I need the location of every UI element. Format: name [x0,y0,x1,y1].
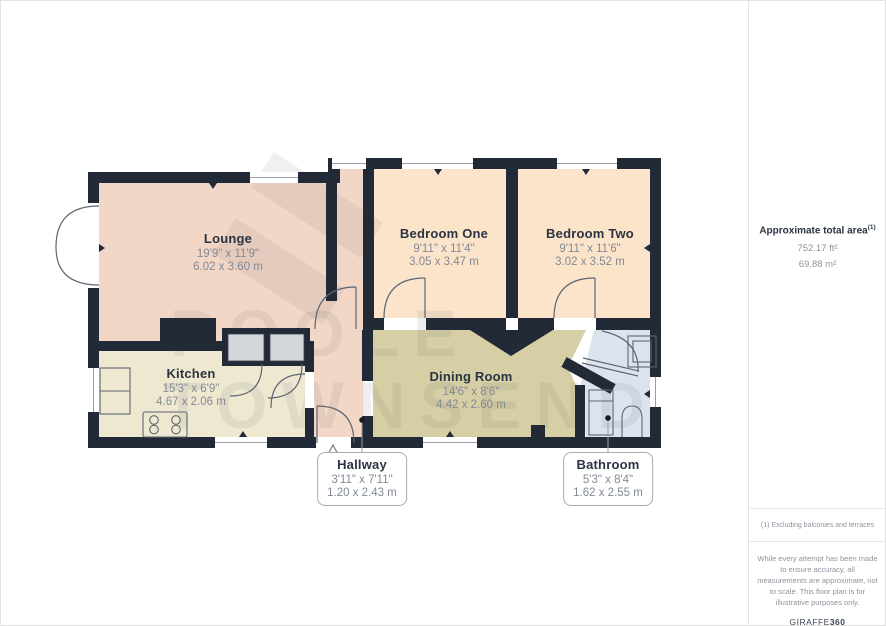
disclaimer-section: While every attempt has been made to ens… [749,541,886,626]
disclaimer-text: While every attempt has been made to ens… [756,554,879,608]
room-name: Lounge [193,231,263,246]
room-dim-imperial: 9'11" x 11'6" [546,243,634,255]
room-dim-metric: 3.05 x 3.47 m [400,256,488,268]
total-area-block: Approximate total area(1) 752.17 ft² 69.… [749,224,886,270]
brand-name: GIRAFFE [789,617,829,626]
room-label-bathroom: Bathroom 5'3" x 8'4" 1.62 x 2.55 m [563,452,653,506]
room-dim-metric: 6.02 x 3.60 m [193,261,263,273]
room-dim-metric: 4.67 x 2.06 m [156,396,226,408]
room-dim-imperial: 3'11" x 7'11" [327,474,397,486]
bathroom-anchor-dot [605,415,611,421]
cupboard-left [228,334,264,361]
room-dim-imperial: 15'3" x 6'9" [156,383,226,395]
room-dim-imperial: 9'11" x 11'4" [400,243,488,255]
room-name: Dining Room [429,369,512,384]
giraffe360-logo: GIRAFFE360 [749,617,886,626]
wall-stub [531,425,545,437]
room-dim-metric: 1.20 x 2.43 m [327,487,397,499]
room-name: Bedroom Two [546,226,634,241]
room-name: Hallway [327,457,397,472]
chimney-breast [160,318,216,341]
room-label-lounge: Lounge 19'9" x 11'9" 6.02 x 3.60 m [193,231,263,273]
room-dim-metric: 4.42 x 2.60 m [429,399,512,411]
room-dim-metric: 3.02 x 3.52 m [546,256,634,268]
kitchen-door-opening [305,372,314,408]
total-area-title: Approximate total area(1) [749,224,886,236]
footnote-section: (1) Excluding balconies and terraces [749,508,886,542]
total-area-superscript: (1) [868,224,876,231]
room-dim-imperial: 19'9" x 11'9" [193,248,263,260]
room-name: Bedroom One [400,226,488,241]
room-name: Kitchen [156,366,226,381]
total-area-ft: 752.17 ft² [749,243,886,254]
room-dim-metric: 1.62 x 2.55 m [573,487,643,499]
info-sidebar: Approximate total area(1) 752.17 ft² 69.… [748,0,886,626]
room-label-dining-room: Dining Room 14'6" x 8'6" 4.42 x 2.60 m [429,369,512,411]
hallway-anchor-dot [359,417,365,423]
room-name: Bathroom [573,457,643,472]
room-dim-imperial: 14'6" x 8'6" [429,386,512,398]
room-label-kitchen: Kitchen 15'3" x 6'9" 4.67 x 2.06 m [156,366,226,408]
room-label-hallway: Hallway 3'11" x 7'11" 1.20 x 2.43 m [317,452,407,506]
cupboard-right [270,334,304,361]
floorplan-page: POOLE TOWNSEND [0,0,886,626]
footnote-text: (1) Excluding balconies and terraces [757,522,878,529]
brand-suffix: 360 [830,617,846,626]
room-label-bedroom-two: Bedroom Two 9'11" x 11'6" 3.02 x 3.52 m [546,226,634,268]
total-area-label: Approximate total area [759,225,867,236]
room-label-bedroom-one: Bedroom One 9'11" x 11'4" 3.05 x 3.47 m [400,226,488,268]
total-area-m: 69.88 m² [749,259,886,270]
french-door-opening [88,203,99,288]
room-dim-imperial: 5'3" x 8'4" [573,474,643,486]
